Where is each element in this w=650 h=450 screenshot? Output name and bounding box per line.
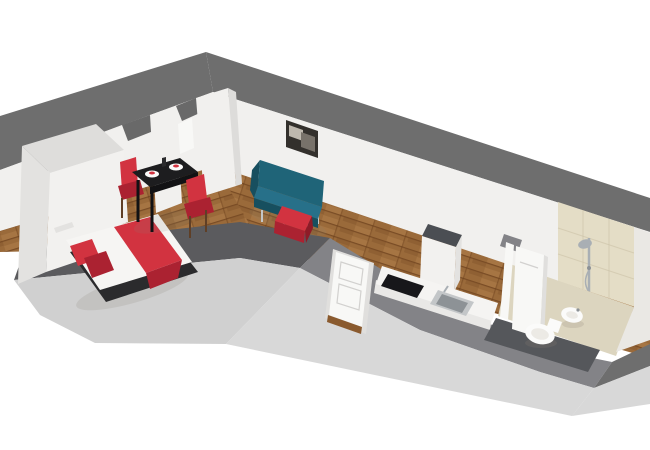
table-candle — [162, 157, 166, 167]
shower-mixer-valve — [587, 266, 591, 270]
alcove-window-frame — [178, 118, 194, 154]
entry-door — [329, 252, 369, 327]
floorplan-svg — [0, 0, 650, 450]
napkin-right — [173, 165, 179, 168]
bidet-tap — [576, 308, 579, 311]
napkin-left — [149, 172, 155, 175]
floorplan-render — [0, 0, 650, 450]
